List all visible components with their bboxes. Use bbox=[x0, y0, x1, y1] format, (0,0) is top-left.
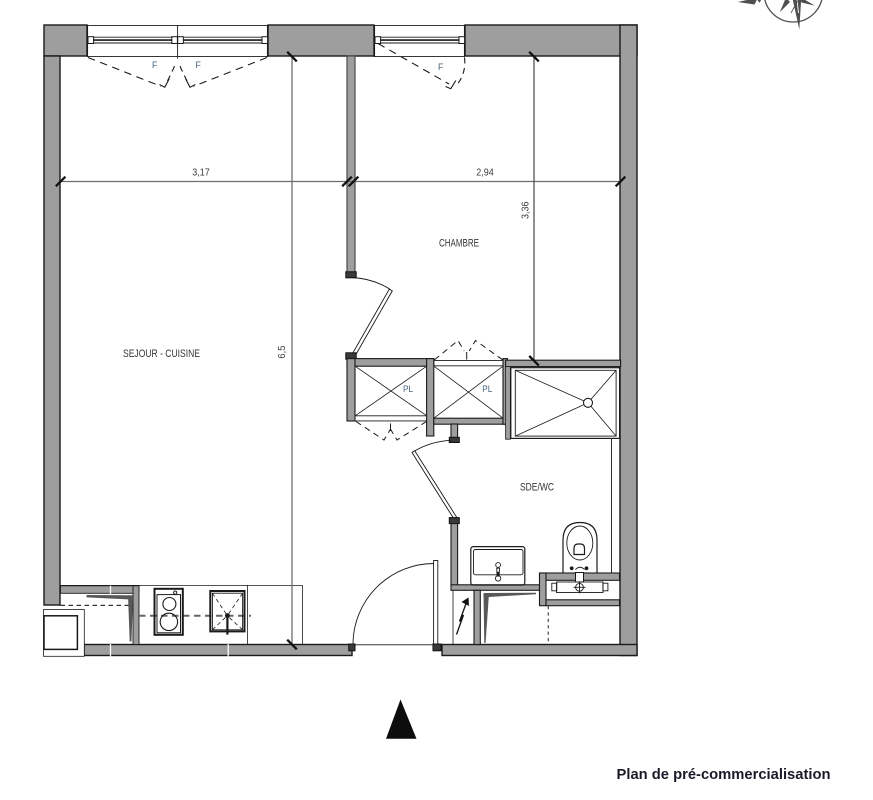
svg-text:SEJOUR - CUISINE: SEJOUR - CUISINE bbox=[123, 348, 200, 360]
svg-text:PL: PL bbox=[403, 384, 413, 394]
svg-text:3,36: 3,36 bbox=[521, 201, 532, 219]
svg-text:SDE/WC: SDE/WC bbox=[520, 482, 554, 494]
svg-text:6,5: 6,5 bbox=[277, 345, 288, 358]
svg-text:CHAMBRE: CHAMBRE bbox=[439, 238, 479, 250]
svg-text:PL: PL bbox=[482, 384, 492, 394]
svg-text:2,94: 2,94 bbox=[476, 167, 494, 178]
svg-text:Plan de pré-commercialisation: Plan de pré-commercialisation bbox=[617, 766, 831, 783]
svg-text:F: F bbox=[438, 62, 444, 72]
svg-text:F: F bbox=[152, 60, 158, 70]
svg-text:F: F bbox=[196, 60, 202, 70]
svg-text:3,17: 3,17 bbox=[192, 167, 210, 178]
